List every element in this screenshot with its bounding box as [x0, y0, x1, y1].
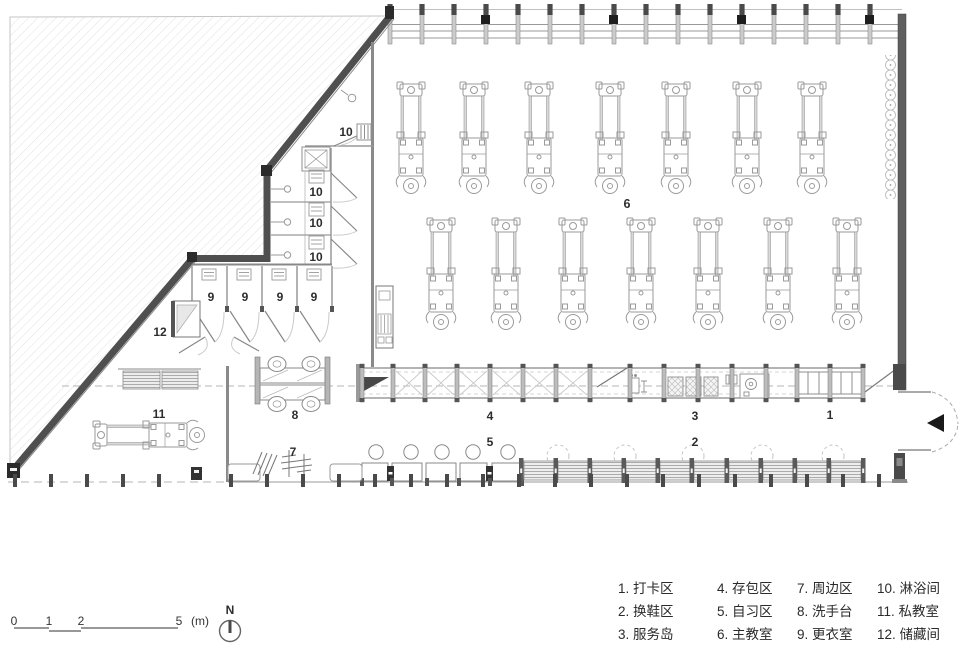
wall-cabinet: [376, 286, 393, 348]
room-label-5: 5: [487, 435, 494, 449]
structural-column: [865, 15, 874, 24]
entry-arrow-icon: [927, 414, 944, 432]
washbasin-island: [255, 357, 330, 412]
reformer-machine: [693, 218, 723, 330]
legend-item: 7. 周边区: [797, 577, 853, 597]
reformer-machine: [797, 82, 827, 194]
room-label-2: 2: [692, 435, 699, 449]
window-wall: [387, 4, 902, 44]
scale-tick-5: 5: [176, 614, 183, 628]
shoe-benches: [519, 445, 866, 483]
service-band: [356, 364, 896, 402]
room-label-9: 9: [242, 290, 249, 304]
legend-item: 3. 服务岛: [618, 623, 674, 643]
reformer-machine: [595, 82, 625, 194]
legend-item: 2. 换鞋区: [618, 600, 674, 620]
legend-item: 10. 淋浴间: [877, 577, 940, 597]
reformer-machine: [661, 82, 691, 194]
entrance-door: [892, 364, 958, 483]
legend-item: 9. 更衣室: [797, 623, 853, 643]
room-label-9: 9: [311, 290, 318, 304]
reformer-machine: [524, 82, 554, 194]
room-label-4: 4: [487, 409, 494, 423]
storage-closet: [171, 301, 259, 355]
scale-bar: [14, 628, 178, 631]
legend-item: 12. 储藏间: [877, 623, 940, 643]
scale-tick-1: 1: [46, 614, 53, 628]
reformer-machine: [491, 218, 521, 330]
room-label-12: 12: [153, 325, 166, 339]
reformer-machine: [459, 82, 489, 194]
reformer-machine: [558, 218, 588, 330]
legend-item: 8. 洗手台: [797, 600, 853, 620]
room-label-6: 6: [624, 197, 631, 211]
north-arrow: [220, 621, 241, 642]
green-wall: [883, 55, 896, 199]
legend-item: 11. 私教室: [877, 600, 939, 620]
reformer-machine: [426, 218, 456, 330]
room-label-11: 11: [153, 407, 166, 421]
plan-drawing: [0, 0, 960, 649]
reformer-machine: [832, 218, 862, 330]
reformer-machine: [396, 82, 426, 194]
right-wall: [898, 14, 906, 390]
structural-column: [609, 15, 618, 24]
legend-item: 1. 打卡区: [618, 577, 674, 597]
room-label-9: 9: [208, 290, 215, 304]
reformer-machine: [763, 218, 793, 330]
floor-plan-canvas: 1 2 3 4 5 6 7 8 9 9 9 9 10 10 10 10 11 1…: [0, 0, 960, 649]
room-label-9: 9: [277, 290, 284, 304]
scale-unit: (m): [191, 614, 209, 628]
room-label-10: 10: [309, 185, 322, 199]
room-label-10: 10: [309, 216, 322, 230]
reformer-machine: [93, 420, 205, 450]
structural-column: [481, 15, 490, 24]
scale-tick-2: 2: [78, 614, 85, 628]
private-studio: [93, 366, 229, 482]
room-label-8: 8: [292, 408, 299, 422]
scale-tick-0: 0: [11, 614, 18, 628]
room-label-3: 3: [692, 409, 699, 423]
study-desks: [360, 445, 524, 486]
legend-item: 4. 存包区: [717, 577, 773, 597]
legend-item: 5. 自习区: [717, 600, 773, 620]
reformer-machine: [732, 82, 762, 194]
ramp-wedge: [364, 377, 389, 391]
main-studio: [371, 42, 896, 367]
room-label-10: 10: [309, 250, 322, 264]
legend-item: 6. 主教室: [717, 623, 773, 643]
changing-cubicles: [190, 266, 334, 342]
reformer-machine: [626, 218, 656, 330]
north-label: N: [226, 603, 235, 617]
room-label-10: 10: [339, 125, 352, 139]
room-label-7: 7: [290, 445, 297, 459]
structural-column: [737, 15, 746, 24]
room-label-1: 1: [827, 408, 834, 422]
